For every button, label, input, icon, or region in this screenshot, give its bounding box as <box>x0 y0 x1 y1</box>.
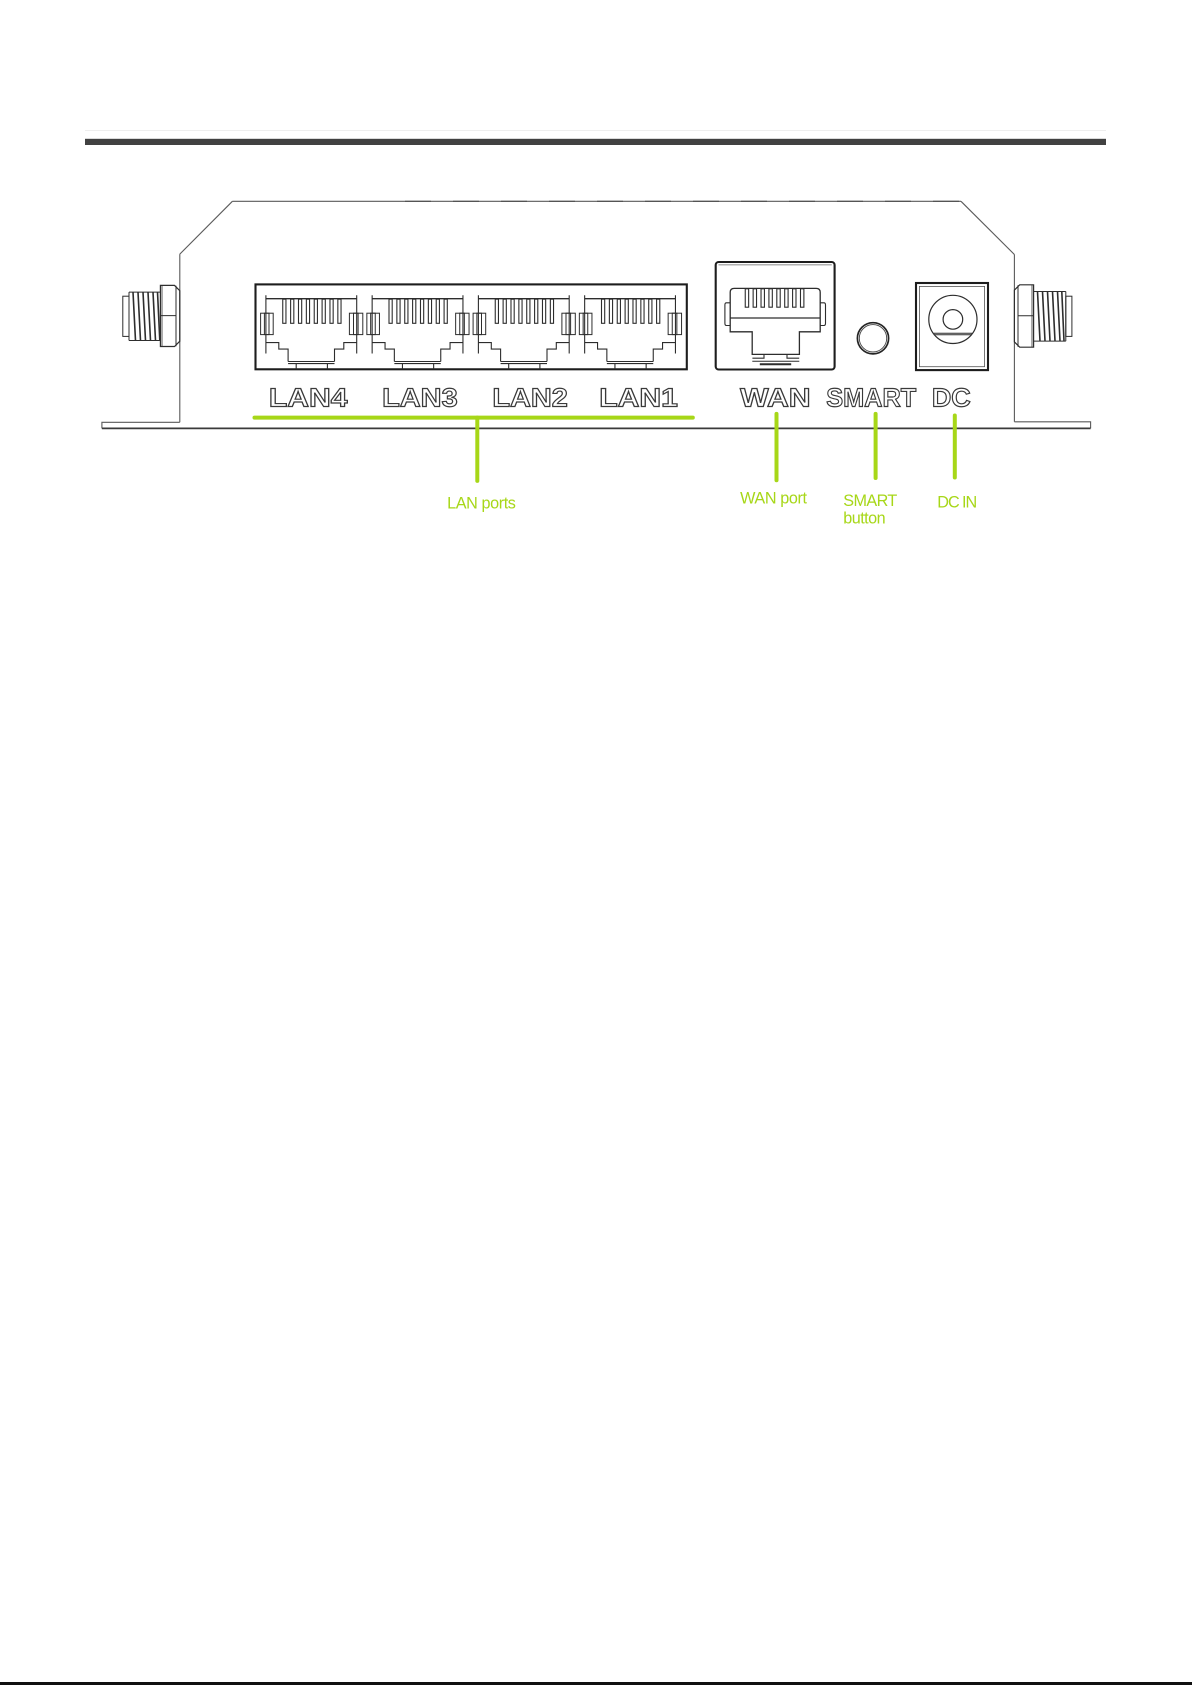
svg-text:LAN2: LAN2 <box>492 383 568 413</box>
svg-text:WAN: WAN <box>740 383 811 413</box>
svg-text:DC IN: DC IN <box>937 494 977 512</box>
svg-text:LAN1: LAN1 <box>599 383 678 413</box>
svg-text:LAN3: LAN3 <box>382 383 458 413</box>
svg-text:LAN4: LAN4 <box>269 383 348 413</box>
svg-text:WAN port: WAN port <box>740 490 807 508</box>
svg-text:LAN ports: LAN ports <box>447 494 516 512</box>
svg-text:SMART: SMART <box>826 383 916 413</box>
svg-text:SMART: SMART <box>843 492 897 510</box>
svg-text:button: button <box>843 510 885 528</box>
svg-text:DC: DC <box>932 383 971 413</box>
